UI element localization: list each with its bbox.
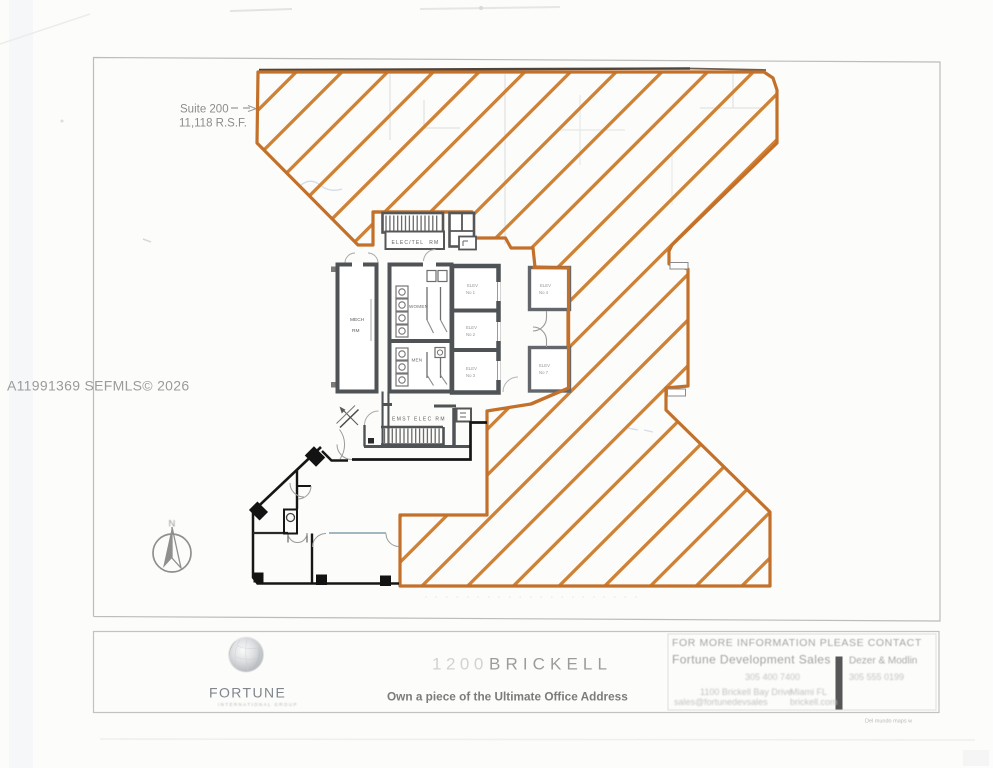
svg-text:ELEV: ELEV (466, 366, 477, 371)
svg-text:No 3: No 3 (466, 373, 476, 378)
svg-text:ELEV: ELEV (466, 325, 477, 330)
svg-text:RM: RM (352, 328, 359, 334)
svg-text:Dezer & Modlin: Dezer & Modlin (849, 656, 917, 667)
svg-text:ELEV: ELEV (467, 283, 478, 288)
svg-text:ELEV: ELEV (539, 363, 550, 368)
svg-text:MEN: MEN (412, 358, 423, 363)
svg-text:brickell.com: brickell.com (790, 697, 838, 707)
svg-text:Del mundo maps w: Del mundo maps w (865, 719, 912, 725)
svg-text:11,118 R.S.F.: 11,118 R.S.F. (179, 118, 247, 130)
svg-text:WOMEN: WOMEN (409, 304, 428, 309)
svg-text:EMST ELEC RM: EMST ELEC RM (392, 417, 445, 423)
svg-text:Suite 200: Suite 200 (180, 104, 229, 116)
svg-text:BRICKELL: BRICKELL (489, 655, 612, 674)
svg-text:305 555 0199: 305 555 0199 (849, 672, 904, 682)
svg-text:1100 Brickell Bay Drive: 1100 Brickell Bay Drive (700, 687, 792, 697)
svg-text:ELEV: ELEV (540, 283, 551, 288)
svg-text:Miami FL: Miami FL (790, 687, 827, 697)
svg-text:A11991369 SEFMLS© 2026: A11991369 SEFMLS© 2026 (7, 378, 189, 394)
svg-text:FOR MORE INFORMATION PLEASE CO: FOR MORE INFORMATION PLEASE CONTACT (672, 637, 922, 649)
svg-text:ELEC/TEL RM: ELEC/TEL RM (392, 240, 439, 246)
svg-text:Fortune Development Sales: Fortune Development Sales (672, 653, 831, 667)
svg-text:Own a piece of the Ultimate O: Own a piece of the Ultimate Office Addre… (387, 690, 628, 704)
svg-text:No 4: No 4 (539, 290, 549, 295)
svg-text:INTERNATIONAL GROUP: INTERNATIONAL GROUP (218, 702, 298, 707)
svg-text:FORTUNE: FORTUNE (209, 685, 286, 701)
svg-text:305 400 7400: 305 400 7400 (745, 672, 800, 682)
svg-text:No 2: No 2 (466, 332, 476, 337)
svg-text:No 7: No 7 (539, 370, 549, 375)
svg-text:1200: 1200 (432, 655, 488, 674)
svg-text:MECH: MECH (350, 317, 365, 323)
svg-text:No 1: No 1 (466, 290, 476, 295)
svg-text:sales@fortunedevsales: sales@fortunedevsales (674, 697, 768, 707)
